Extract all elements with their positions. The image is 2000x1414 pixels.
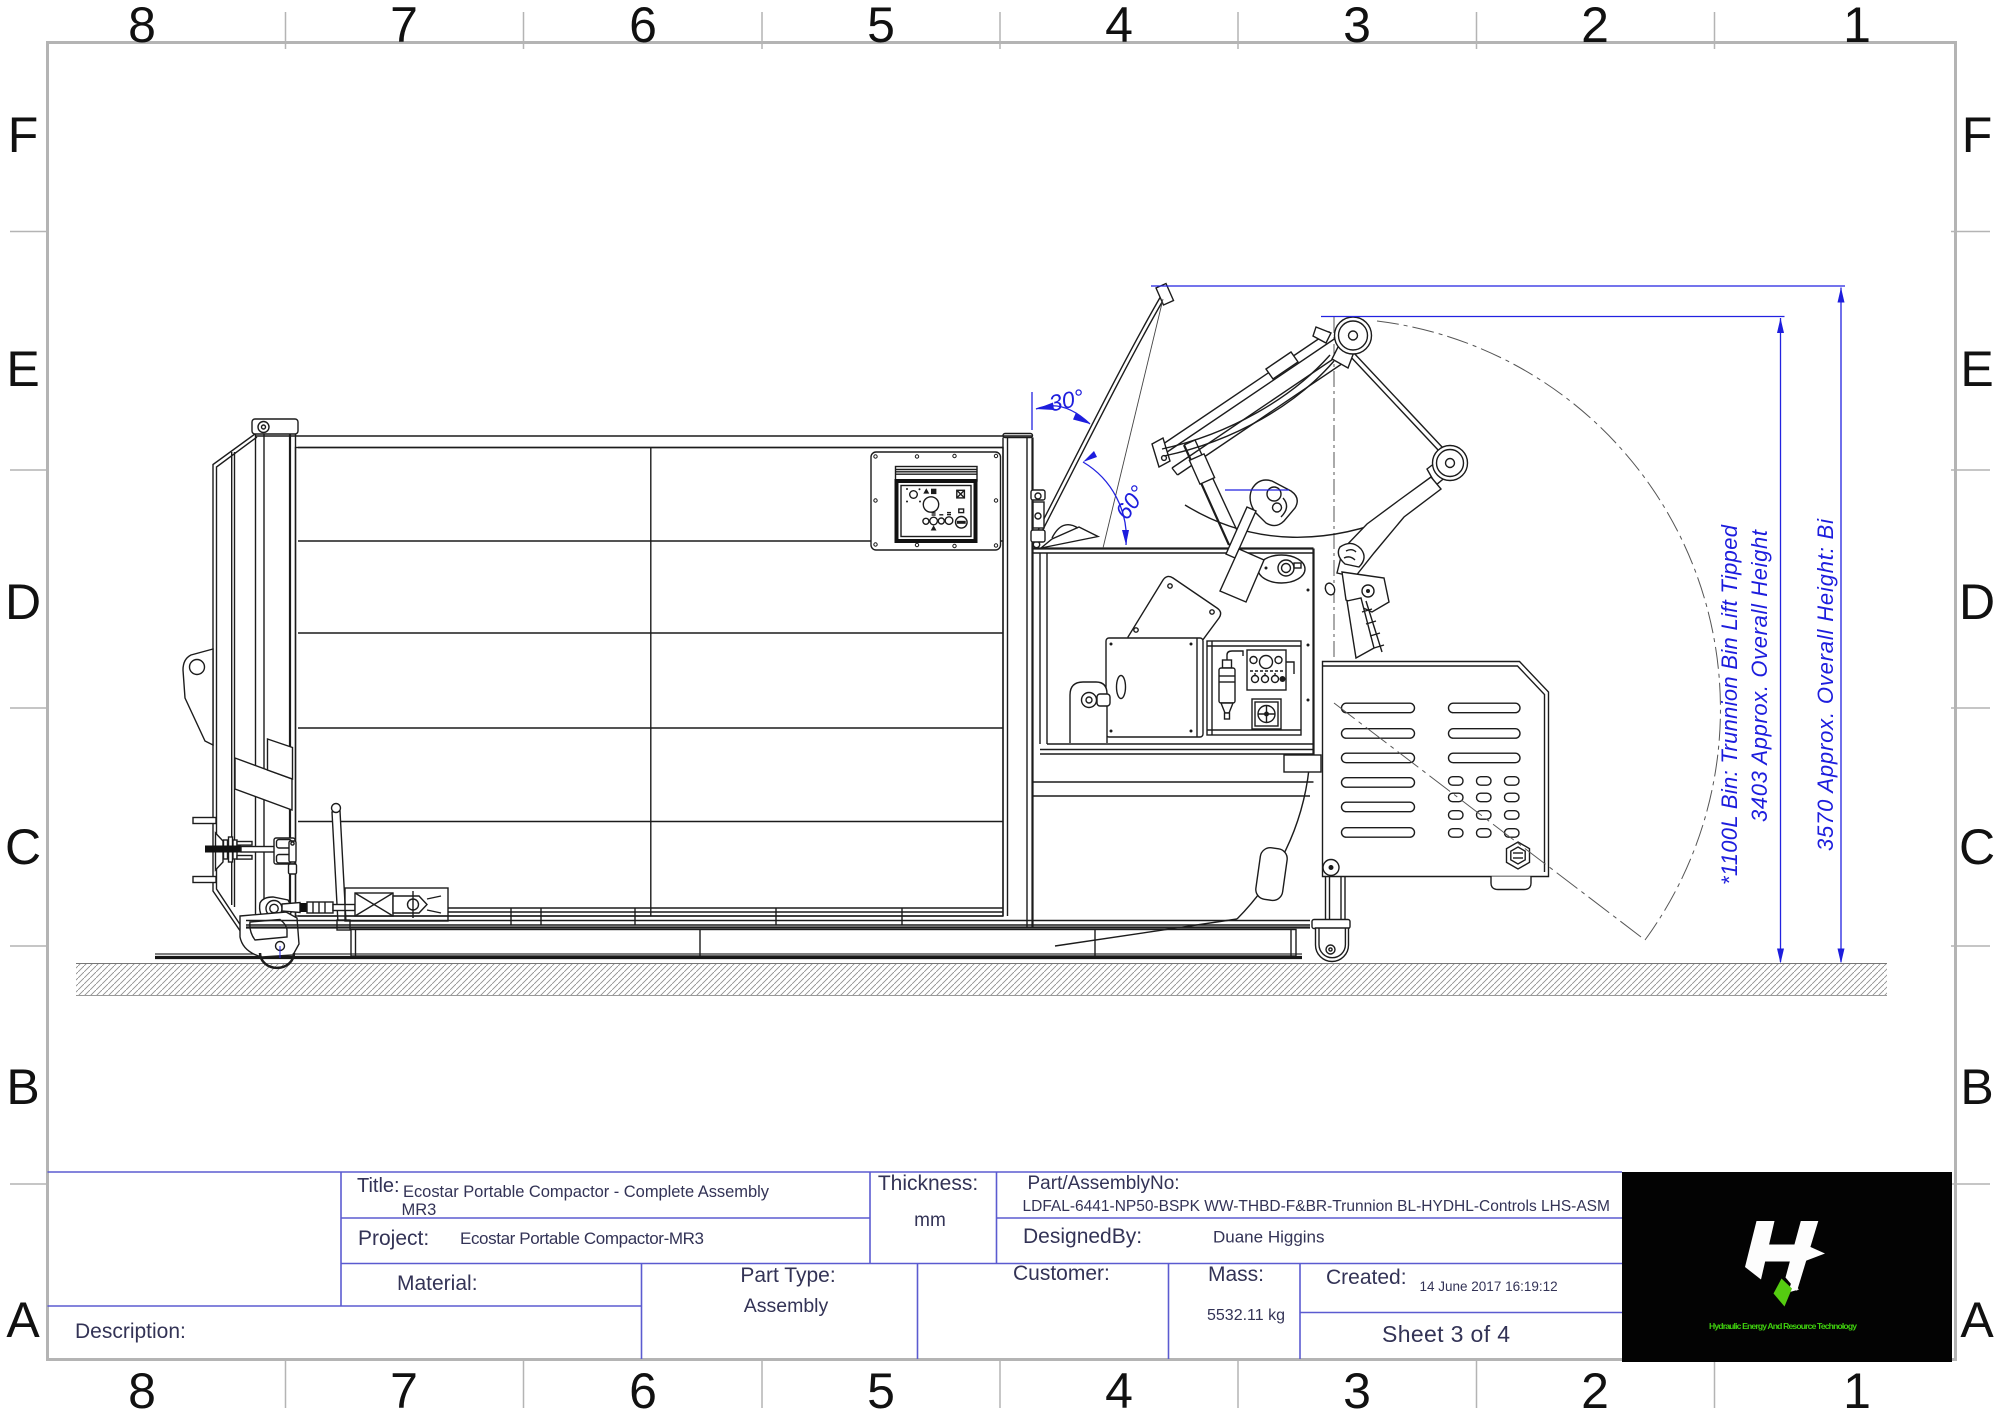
svg-text:Assembly: Assembly — [744, 1295, 829, 1317]
svg-text:2: 2 — [1581, 1363, 1609, 1414]
svg-text:Sheet 3 of 4: Sheet 3 of 4 — [1382, 1321, 1510, 1347]
svg-text:MR3: MR3 — [402, 1201, 437, 1219]
svg-text:2: 2 — [1581, 0, 1609, 53]
svg-text:mm: mm — [914, 1210, 946, 1231]
svg-text:3: 3 — [1343, 1363, 1371, 1414]
svg-text:D: D — [1959, 574, 1995, 630]
svg-text:Title:: Title: — [357, 1175, 400, 1197]
svg-text:Thickness:: Thickness: — [878, 1172, 978, 1195]
svg-text:C: C — [5, 819, 41, 875]
svg-text:5: 5 — [867, 1363, 895, 1414]
svg-text:3403 Approx. Overall Height: 3403 Approx. Overall Height — [1747, 529, 1772, 822]
svg-text:F: F — [1962, 107, 1993, 163]
svg-text:Project:: Project: — [358, 1227, 429, 1250]
svg-text:C: C — [1959, 819, 1995, 875]
svg-text:Customer:: Customer: — [1013, 1262, 1110, 1285]
svg-text:B: B — [6, 1059, 39, 1115]
svg-text:14 June 2017 16:19:12: 14 June 2017 16:19:12 — [1420, 1279, 1558, 1294]
svg-text:Hydraulic Energy And Resource: Hydraulic Energy And Resource Technology — [1709, 1321, 1857, 1331]
svg-text:6: 6 — [629, 0, 657, 53]
svg-text:LDFAL-6441-NP50-BSPK WW-THBD-F: LDFAL-6441-NP50-BSPK WW-THBD-F&BR-Trunni… — [1023, 1198, 1610, 1215]
svg-text:Part Type:: Part Type: — [740, 1264, 835, 1287]
svg-text:6: 6 — [629, 1363, 657, 1414]
svg-text:A: A — [6, 1292, 40, 1348]
svg-text:B: B — [1960, 1059, 1993, 1115]
svg-text:8: 8 — [128, 1363, 156, 1414]
svg-text:8: 8 — [128, 0, 156, 53]
svg-text:F: F — [8, 107, 39, 163]
svg-text:Created:: Created: — [1326, 1266, 1407, 1289]
svg-text:5532.11 kg: 5532.11 kg — [1207, 1307, 1285, 1324]
svg-text:5: 5 — [867, 0, 895, 53]
svg-text:3570 Approx. Overall Height: B: 3570 Approx. Overall Height: Bi — [1813, 518, 1838, 851]
svg-text:Mass:: Mass: — [1208, 1263, 1264, 1286]
svg-text:1: 1 — [1843, 1363, 1871, 1414]
svg-text:Part/AssemblyNo:: Part/AssemblyNo: — [1028, 1173, 1180, 1194]
svg-text:Ecostar Portable Compactor - C: Ecostar Portable Compactor - Complete As… — [403, 1183, 770, 1201]
svg-text:A: A — [1960, 1292, 1994, 1348]
svg-text:E: E — [1960, 341, 1993, 397]
svg-text:DesignedBy:: DesignedBy: — [1023, 1225, 1142, 1248]
svg-text:3: 3 — [1343, 0, 1371, 53]
svg-text:Ecostar Portable Compactor-MR3: Ecostar Portable Compactor-MR3 — [460, 1229, 704, 1248]
svg-text:1: 1 — [1843, 0, 1871, 53]
svg-text:Material:: Material: — [397, 1272, 478, 1295]
svg-text:Duane Higgins: Duane Higgins — [1213, 1228, 1325, 1247]
svg-text:E: E — [6, 341, 39, 397]
svg-text:7: 7 — [390, 0, 418, 53]
svg-text:*1100L Bin: Trunnion Bin Lift: *1100L Bin: Trunnion Bin Lift Tipped — [1717, 524, 1742, 885]
svg-text:D: D — [5, 574, 41, 630]
svg-text:4: 4 — [1105, 0, 1133, 53]
svg-text:7: 7 — [390, 1363, 418, 1414]
svg-text:Description:: Description: — [75, 1320, 186, 1343]
svg-text:4: 4 — [1105, 1363, 1133, 1414]
